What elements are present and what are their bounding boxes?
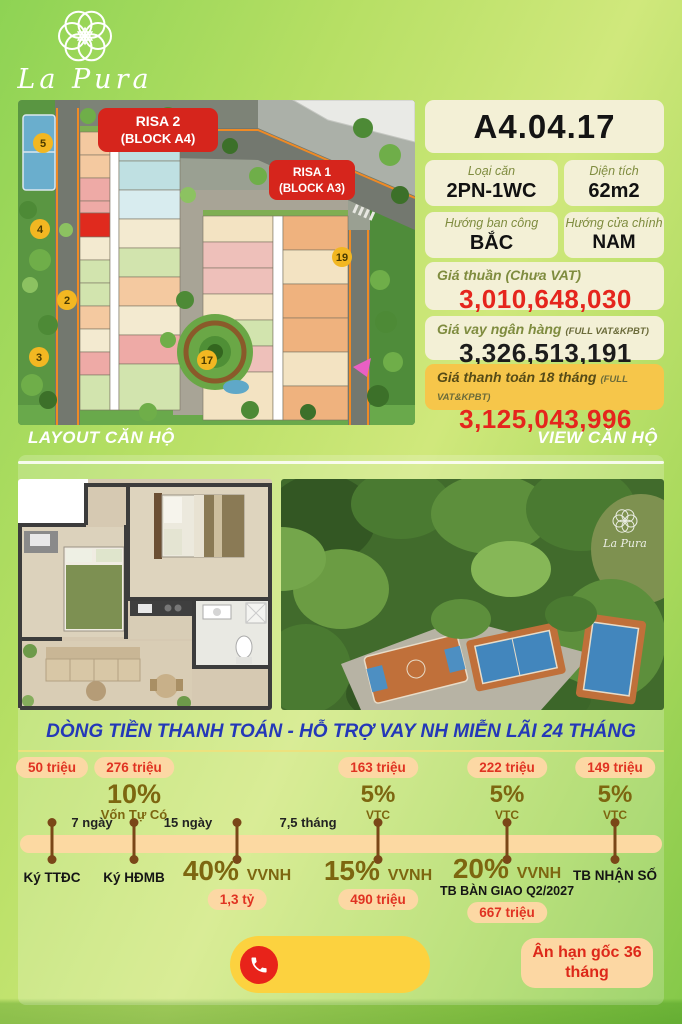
plan-marker: 2 [57, 290, 77, 310]
milestone-percent: 5% [598, 783, 633, 807]
milestone-percent-label: VTC [495, 808, 519, 822]
plan-marker: 4 [30, 219, 50, 239]
field-huong-ban-cong: Hướng ban công BẮC [425, 212, 558, 258]
timeline-pin [51, 822, 54, 860]
milestone-percent-label: VTC [603, 808, 627, 822]
field-loai-can: Loại căn 2PN-1WC [425, 160, 558, 206]
price-note: (FULL VAT&KPBT) [565, 326, 648, 337]
milestone-amount-badge: 163 triệu [338, 757, 418, 778]
milestone-percent-label: VTC [366, 808, 390, 822]
price-18-months: Giá thanh toán 18 tháng(FULL VAT&KPBT) 3… [425, 364, 664, 410]
milestone-label: Ký TTĐC [24, 870, 81, 885]
interval-label: 15 ngày [164, 815, 212, 830]
field-label: Diện tích [589, 164, 638, 178]
field-huong-cua-chinh: Hướng cửa chính NAM [564, 212, 664, 258]
milestone-percent: 5% [361, 783, 396, 807]
layout-section-label: LAYOUT CĂN HỘ [28, 428, 175, 448]
timeline-pin [133, 822, 136, 860]
floor-plan-image [18, 479, 272, 710]
site-plan-image: RISA 2 (BLOCK A4) RISA 1 (BLOCK A3) 5 4 … [18, 100, 415, 425]
price-bank-loan: Giá vay ngân hàng(FULL VAT&KPBT) 3,326,5… [425, 316, 664, 360]
watermark-text: La Pura [602, 537, 647, 550]
svg-text:(BLOCK A3): (BLOCK A3) [279, 183, 345, 195]
price-net: Giá thuần (Chưa VAT) 3,010,648,030 [425, 262, 664, 310]
price-label: Giá vay ngân hàng [437, 321, 561, 337]
price-label: Giá thuần (Chưa VAT) [437, 267, 581, 283]
timeline-bar [20, 835, 662, 853]
milestone-note: TB BÀN GIAO Q2/2027 [440, 884, 574, 898]
svg-text:RISA 2: RISA 2 [136, 113, 181, 129]
milestone-percent: 15% VVNH [324, 857, 432, 885]
milestone-amount-badge: 490 triệu [338, 889, 418, 910]
plan-label-risa2: RISA 2 (BLOCK A4) [98, 108, 218, 152]
milestone-amount-badge: 667 triệu [467, 902, 547, 923]
milestone-percent: 40% VVNH [183, 857, 291, 885]
svg-text:RISA 1: RISA 1 [293, 165, 332, 179]
svg-text:17: 17 [201, 355, 213, 367]
view-section-label: VIEW CĂN HỘ [537, 428, 658, 448]
field-value: BẮC [470, 232, 513, 255]
milestone-amount-badge: 276 triệu [94, 757, 174, 778]
svg-text:19: 19 [336, 252, 348, 264]
plan-block-a4 [80, 126, 180, 410]
field-label: Loại căn [468, 164, 515, 178]
unit-code: A4.04.17 [425, 100, 664, 153]
timeline-pin [614, 822, 617, 860]
svg-text:4: 4 [37, 224, 44, 236]
field-label: Hướng ban công [445, 216, 538, 230]
grace-period-badge: Ân hạn gốc 36 tháng [521, 938, 653, 988]
milestone-amount-badge: 50 triệu [16, 757, 88, 778]
milestone-percent-label: Vốn Tự Có [101, 807, 167, 822]
milestone-percent: 5% [490, 783, 525, 807]
brand-name: La Pura [5, 66, 165, 93]
price-value: 3,010,648,030 [437, 285, 654, 314]
payment-divider [18, 750, 664, 752]
field-value: NAM [592, 232, 635, 254]
field-value: 62m2 [588, 180, 639, 203]
flower-icon [52, 6, 118, 66]
milestone-amount-badge: 1,3 tỷ [208, 889, 267, 910]
brand-logo: La Pura [5, 6, 165, 98]
svg-text:(BLOCK A4): (BLOCK A4) [121, 131, 196, 146]
payment-title: DÒNG TIỀN THANH TOÁN - HỖ TRỢ VAY NH MIỄ… [0, 721, 682, 743]
milestone-percent: 20% VVNH [453, 855, 561, 883]
svg-text:5: 5 [40, 138, 46, 150]
price-label: Giá thanh toán 18 tháng [437, 369, 596, 385]
section-divider [18, 461, 664, 464]
plan-marker: 5 [33, 133, 53, 153]
view-aerial-image: La Pura [281, 479, 664, 710]
milestone-percent: 10% [107, 781, 161, 808]
svg-text:3: 3 [36, 352, 42, 364]
plan-marker: 17 [197, 350, 217, 370]
field-value: 2PN-1WC [446, 180, 536, 203]
svg-text:2: 2 [64, 295, 70, 307]
field-dien-tich: Diện tích 62m2 [564, 160, 664, 206]
phone-icon [240, 946, 278, 984]
milestone-label: TB NHẬN SỐ [573, 868, 657, 883]
plan-label-risa1: RISA 1 (BLOCK A3) [269, 160, 355, 200]
milestone-amount-badge: 222 triệu [467, 757, 547, 778]
plan-marker: 19 [332, 247, 352, 267]
phone-button[interactable] [230, 936, 430, 993]
milestone-label: Ký HĐMB [103, 870, 165, 885]
milestone-amount-badge: 149 triệu [575, 757, 655, 778]
plan-marker: 3 [29, 347, 49, 367]
flyer-page: La Pura [0, 0, 682, 1024]
field-label: Hướng cửa chính [565, 216, 662, 230]
interval-label: 7,5 tháng [279, 815, 336, 830]
plan-highlight-unit [80, 213, 110, 237]
